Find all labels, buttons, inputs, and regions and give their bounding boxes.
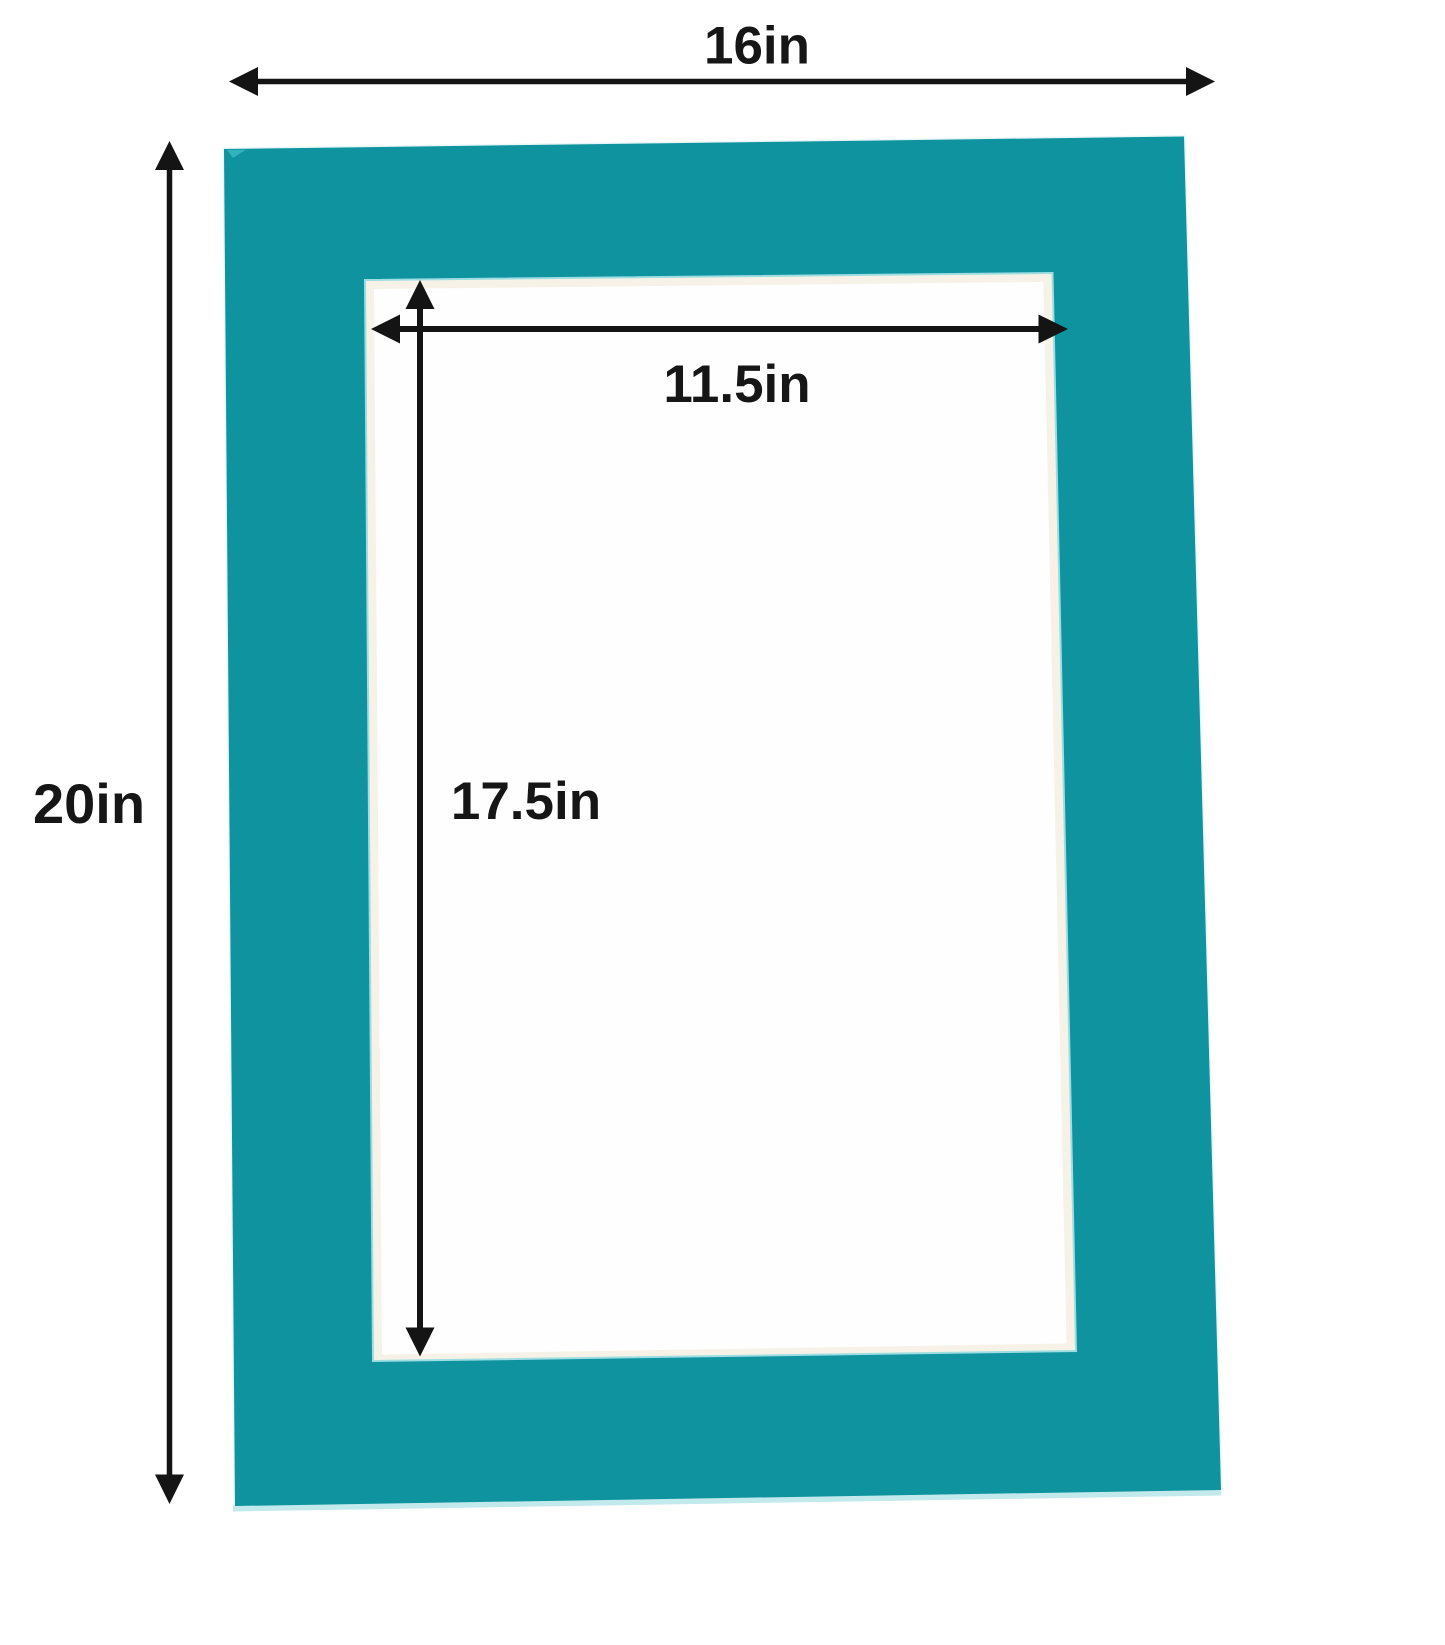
svg-text:17.5in: 17.5in <box>451 772 601 831</box>
svg-text:11.5in: 11.5in <box>663 355 810 414</box>
svg-text:16in: 16in <box>704 17 810 76</box>
svg-text:20in: 20in <box>33 772 145 835</box>
